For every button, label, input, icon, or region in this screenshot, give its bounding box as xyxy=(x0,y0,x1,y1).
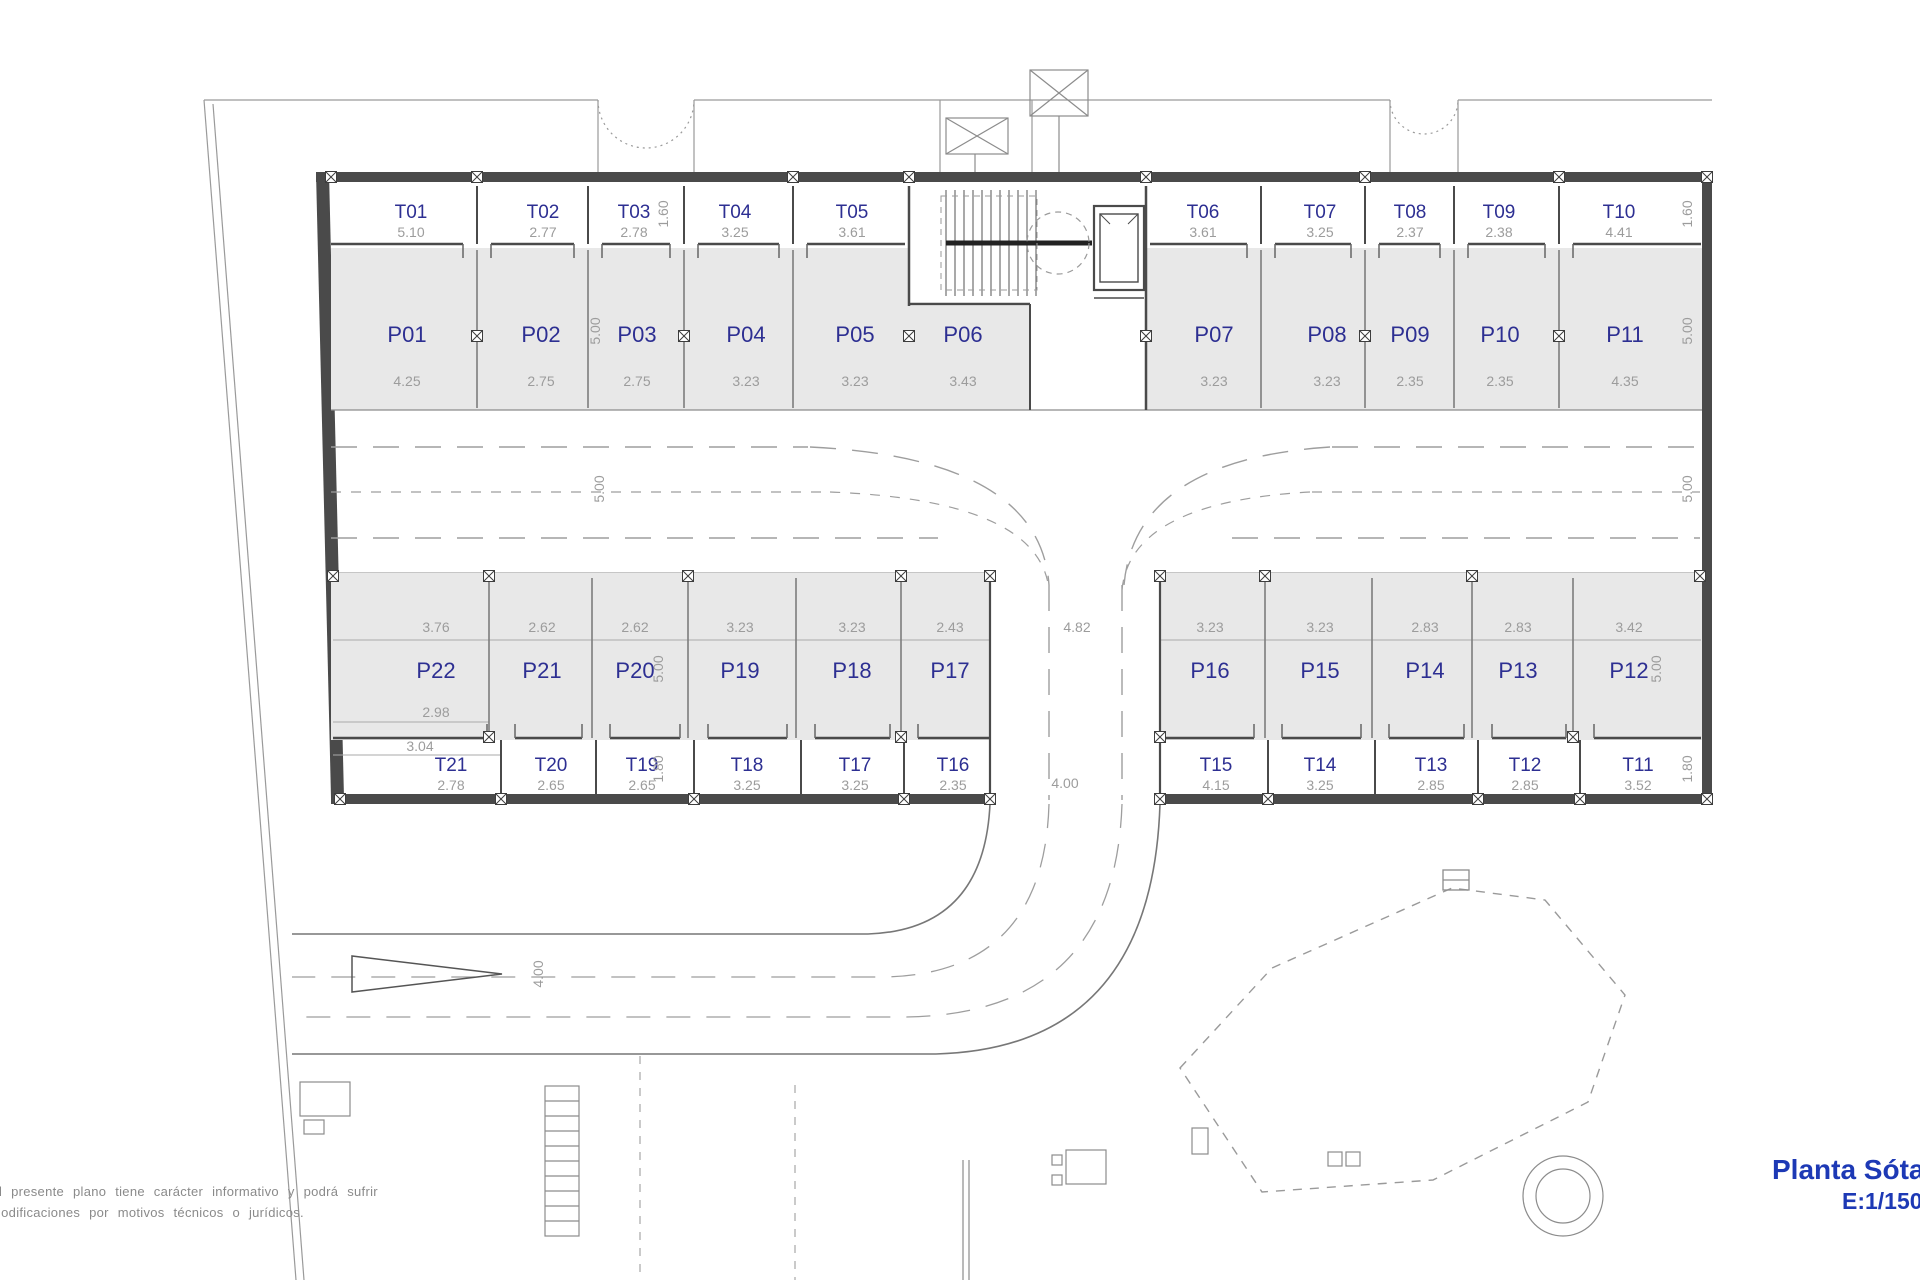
parking-space-label: P18 xyxy=(832,658,871,683)
dimension-label: 2.35 xyxy=(1396,373,1423,389)
dimension-label: 2.35 xyxy=(939,777,966,793)
parking-space-label: P20 xyxy=(615,658,654,683)
column-icon xyxy=(1141,331,1152,342)
parking-space-label: P22 xyxy=(416,658,455,683)
dimension-label: 5.00 xyxy=(1679,317,1695,344)
parking-space-label: P12 xyxy=(1609,658,1648,683)
dimension-label: 3.25 xyxy=(1306,224,1333,240)
storage-room-label: T14 xyxy=(1304,755,1337,776)
dimension-label: 3.43 xyxy=(949,373,976,389)
dimension-label: 5.00 xyxy=(587,317,603,344)
storage-room-label: T16 xyxy=(937,755,970,776)
dimension-label: 4.35 xyxy=(1611,373,1638,389)
dimension-label: 4.25 xyxy=(393,373,420,389)
dimension-label: 3.23 xyxy=(1200,373,1227,389)
floor-plan-drawing: T015.10T022.77T032.78T043.25T053.61T063.… xyxy=(0,0,1920,1280)
column-icon xyxy=(1568,732,1579,743)
dimension-label: 3.42 xyxy=(1615,619,1642,635)
dimension-label: 2.65 xyxy=(537,777,564,793)
column-icon xyxy=(1473,794,1484,805)
dimension-label: 2.62 xyxy=(528,619,555,635)
parking-space-label: P01 xyxy=(387,322,426,347)
dimension-label: 3.23 xyxy=(841,373,868,389)
dimension-label: 3.23 xyxy=(726,619,753,635)
column-icon xyxy=(326,172,337,183)
column-icon xyxy=(985,794,996,805)
dimension-label: 2.38 xyxy=(1485,224,1512,240)
storage-room-label: T12 xyxy=(1509,755,1542,776)
storage-room-label: T17 xyxy=(839,755,872,776)
column-icon xyxy=(1575,794,1586,805)
parking-space-label: P04 xyxy=(726,322,765,347)
page-title: Planta Sótano xyxy=(1772,1152,1920,1187)
dimension-label: 3.04 xyxy=(406,738,433,754)
dimension-label: 3.25 xyxy=(733,777,760,793)
column-icon xyxy=(689,794,700,805)
parking-space-label: P14 xyxy=(1405,658,1444,683)
dimension-label: 5.00 xyxy=(1679,475,1695,502)
column-icon xyxy=(328,571,339,582)
storage-room-label: T09 xyxy=(1483,202,1516,223)
column-icon xyxy=(1360,331,1371,342)
storage-room-label: T05 xyxy=(836,202,869,223)
column-icon xyxy=(1467,571,1478,582)
column-icon xyxy=(472,331,483,342)
disclaimer-line-2: modificaciones por motivos técnicos o ju… xyxy=(0,1203,480,1224)
column-icon xyxy=(1554,172,1565,183)
column-icon xyxy=(1695,571,1706,582)
column-icon xyxy=(335,794,346,805)
dimension-label: 2.37 xyxy=(1396,224,1423,240)
dimension-label: 3.61 xyxy=(1189,224,1216,240)
parking-space-label: P19 xyxy=(720,658,759,683)
column-icon xyxy=(1155,571,1166,582)
column-icon xyxy=(985,571,996,582)
disclaimer-line-1: El presente plano tiene carácter informa… xyxy=(0,1182,480,1203)
dimension-label: 2.43 xyxy=(936,619,963,635)
dimension-label: 3.23 xyxy=(1313,373,1340,389)
dimension-label: 5.10 xyxy=(397,224,424,240)
storage-room-label: T15 xyxy=(1200,755,1233,776)
column-icon xyxy=(472,172,483,183)
column-icon xyxy=(896,571,907,582)
parking-space-label: P16 xyxy=(1190,658,1229,683)
column-icon xyxy=(899,794,910,805)
column-icon xyxy=(904,172,915,183)
storage-room-label: T03 xyxy=(618,202,651,223)
dimension-label: 2.75 xyxy=(623,373,650,389)
dimension-label: 2.77 xyxy=(529,224,556,240)
dimension-label: 2.98 xyxy=(422,704,449,720)
dimension-label: 5.00 xyxy=(591,475,607,502)
parking-space-label: P07 xyxy=(1194,322,1233,347)
parking-space-label: P03 xyxy=(617,322,656,347)
dimension-label: 5.00 xyxy=(650,655,666,682)
dimension-label: 2.78 xyxy=(620,224,647,240)
column-icon xyxy=(484,732,495,743)
column-icon xyxy=(1702,172,1713,183)
disclaimer-note: El presente plano tiene carácter informa… xyxy=(0,1182,480,1224)
dimension-label: 1.80 xyxy=(650,755,666,782)
column-icon xyxy=(896,732,907,743)
dimension-label: 3.25 xyxy=(1306,777,1333,793)
column-icon xyxy=(683,571,694,582)
dimension-label: 3.25 xyxy=(721,224,748,240)
column-icon xyxy=(1263,794,1274,805)
storage-room-label: T02 xyxy=(527,202,560,223)
storage-room-label: T21 xyxy=(435,755,468,776)
storage-room-label: T01 xyxy=(395,202,428,223)
column-icon xyxy=(496,794,507,805)
dimension-label: 1.80 xyxy=(1679,755,1695,782)
dimension-label: 3.23 xyxy=(732,373,759,389)
parking-space-label: P15 xyxy=(1300,658,1339,683)
dimension-label: 2.85 xyxy=(1511,777,1538,793)
storage-room-label: T20 xyxy=(535,755,568,776)
dimension-label: 3.23 xyxy=(1306,619,1333,635)
dimension-label: 2.83 xyxy=(1504,619,1531,635)
dimension-label: 3.25 xyxy=(841,777,868,793)
column-icon xyxy=(788,172,799,183)
dimension-label: 4.82 xyxy=(1063,619,1090,635)
parking-space-label: P11 xyxy=(1606,322,1644,347)
dimension-label: 4.15 xyxy=(1202,777,1229,793)
dimension-label: 3.76 xyxy=(422,619,449,635)
storage-room-label: T11 xyxy=(1622,755,1653,776)
dimension-label: 1.60 xyxy=(1679,200,1695,227)
column-icon xyxy=(1702,794,1713,805)
parking-space-label: P05 xyxy=(835,322,874,347)
title-block: Planta Sótano E:1/150 xyxy=(1772,1152,1920,1216)
dimension-label: 3.23 xyxy=(1196,619,1223,635)
column-icon xyxy=(1360,172,1371,183)
column-icon xyxy=(904,331,915,342)
storage-room-label: T04 xyxy=(719,202,752,223)
dimension-label: 2.62 xyxy=(621,619,648,635)
storage-room-label: T07 xyxy=(1304,202,1337,223)
dimension-label: 2.83 xyxy=(1411,619,1438,635)
storage-room-label: T10 xyxy=(1603,202,1636,223)
dimension-label: 3.61 xyxy=(838,224,865,240)
parking-space-label: P06 xyxy=(943,322,982,347)
dimension-label: 1.60 xyxy=(655,200,671,227)
column-icon xyxy=(1554,331,1565,342)
dimension-label: 2.78 xyxy=(437,777,464,793)
column-icon xyxy=(1155,794,1166,805)
dimension-label: 2.85 xyxy=(1417,777,1444,793)
parking-space-label: P21 xyxy=(522,658,561,683)
dimension-label: 4.41 xyxy=(1605,224,1632,240)
dimension-label: 3.23 xyxy=(838,619,865,635)
parking-space-label: P10 xyxy=(1480,322,1519,347)
column-icon xyxy=(679,331,690,342)
dimension-label: 3.52 xyxy=(1624,777,1651,793)
parking-space-label: P17 xyxy=(930,658,969,683)
dimension-label: 5.00 xyxy=(1648,655,1664,682)
column-icon xyxy=(1260,571,1271,582)
dimension-label: 4.00 xyxy=(530,960,546,987)
scale-label: E:1/150 xyxy=(1842,1187,1920,1216)
parking-space-label: P13 xyxy=(1498,658,1537,683)
dimension-label: 4.00 xyxy=(1051,775,1078,791)
storage-room-label: T06 xyxy=(1187,202,1220,223)
column-icon xyxy=(1155,732,1166,743)
parking-space-label: P02 xyxy=(521,322,560,347)
storage-room-label: T08 xyxy=(1394,202,1427,223)
storage-room-label: T18 xyxy=(731,755,764,776)
column-icon xyxy=(484,571,495,582)
parking-space-label: P08 xyxy=(1307,322,1346,347)
dimension-label: 2.75 xyxy=(527,373,554,389)
storage-room-label: T13 xyxy=(1415,755,1448,776)
column-icon xyxy=(1141,172,1152,183)
parking-space-label: P09 xyxy=(1390,322,1429,347)
dimension-label: 2.35 xyxy=(1486,373,1513,389)
